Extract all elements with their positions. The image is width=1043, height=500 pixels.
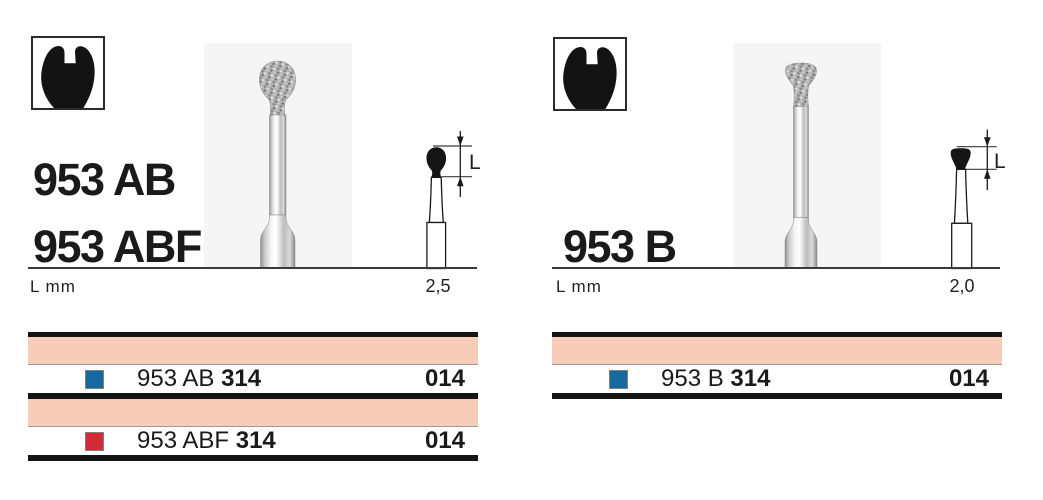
dimension-label: L	[469, 151, 481, 175]
product-family-icon-box	[31, 36, 105, 110]
bur-diagram	[420, 122, 495, 272]
size-code: 014	[425, 365, 465, 393]
table-rule	[552, 393, 1002, 399]
table-row: 953 B 314 014	[552, 365, 1002, 393]
separator-line	[552, 267, 1000, 269]
grit-color-swatch-blue	[609, 370, 628, 389]
table-rule	[28, 455, 478, 461]
bur-diagram	[945, 122, 1020, 272]
table-row: 953 AB 314 014	[28, 365, 478, 393]
scale-label: L mm	[30, 277, 76, 297]
tooth-crown-icon	[33, 38, 103, 108]
accent-band	[28, 337, 478, 365]
catalog-page: 953 AB 953 ABF L L mm 2,5 953 AB 314 014	[0, 0, 1043, 500]
scale-label: L mm	[556, 277, 602, 297]
size-value: 2,0	[938, 276, 986, 297]
product-code: 953 B	[661, 365, 724, 392]
accent-band	[552, 337, 1002, 365]
product-code: 953 ABF	[137, 427, 229, 454]
spec-table: 953 B 314 014	[552, 332, 1002, 399]
size-code: 014	[949, 365, 989, 393]
grit-color-swatch-red	[85, 432, 104, 451]
iso-shank-code: 314	[221, 365, 261, 392]
product-title: 953 B	[563, 224, 676, 269]
product-title: 953 AB	[33, 157, 175, 202]
table-row: 953 ABF 314 014	[28, 427, 478, 455]
product-family-icon-box	[553, 37, 627, 111]
product-code: 953 AB	[137, 365, 214, 392]
spec-table: 953 AB 314 014 953 ABF 314 014	[28, 332, 478, 461]
iso-shank-code: 314	[730, 365, 770, 392]
accent-band	[28, 399, 478, 427]
dimension-label: L	[994, 150, 1006, 174]
size-code: 014	[425, 427, 465, 455]
size-value: 2,5	[414, 276, 462, 297]
bur-photo	[733, 43, 881, 268]
separator-line	[28, 267, 477, 269]
product-title: 953 ABF	[33, 224, 201, 269]
tooth-crown-icon	[555, 39, 625, 109]
bur-photo	[204, 43, 352, 268]
iso-shank-code: 314	[236, 427, 276, 454]
grit-color-swatch-blue	[85, 370, 104, 389]
